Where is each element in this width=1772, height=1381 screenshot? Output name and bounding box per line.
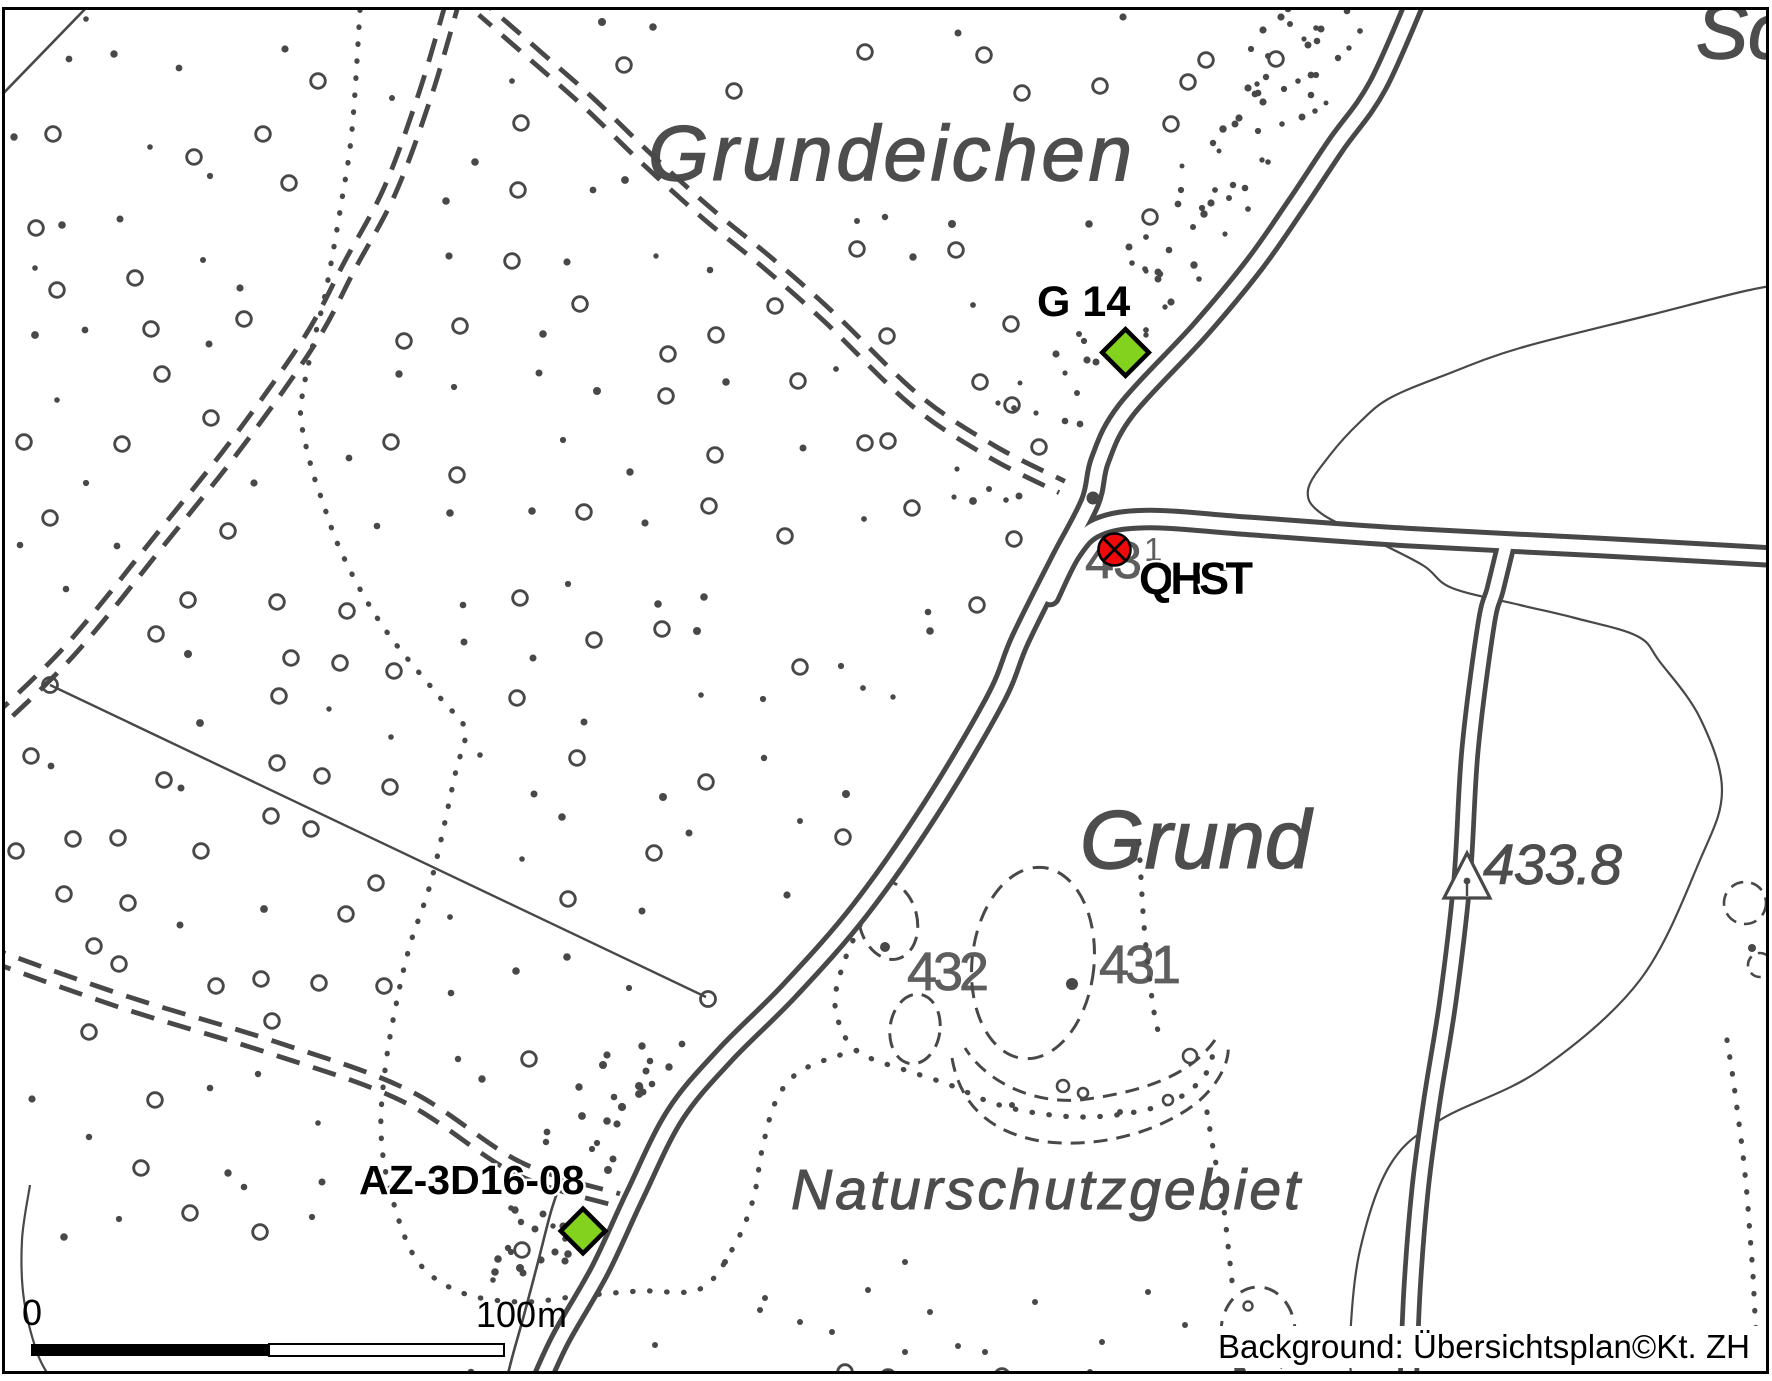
svg-text:431: 431	[1099, 935, 1181, 995]
svg-text:Background: Übersichtsplan©Kt.: Background: Übersichtsplan©Kt. ZH	[1218, 1328, 1750, 1365]
svg-text:433.8: 433.8	[1483, 833, 1622, 897]
svg-text:AZ-3D16-08: AZ-3D16-08	[359, 1157, 585, 1203]
svg-text:0: 0	[22, 1292, 42, 1333]
svg-text:m: m	[537, 1294, 567, 1335]
svg-text:Grundeichen: Grundeichen	[648, 109, 1132, 197]
svg-text:Sc: Sc	[1696, 0, 1772, 75]
svg-text:100: 100	[476, 1294, 536, 1335]
svg-text:Grund: Grund	[1080, 793, 1314, 886]
svg-text:QHST: QHST	[1139, 553, 1253, 604]
svg-text:G 14: G 14	[1037, 278, 1130, 326]
svg-text:432: 432	[907, 942, 989, 1002]
